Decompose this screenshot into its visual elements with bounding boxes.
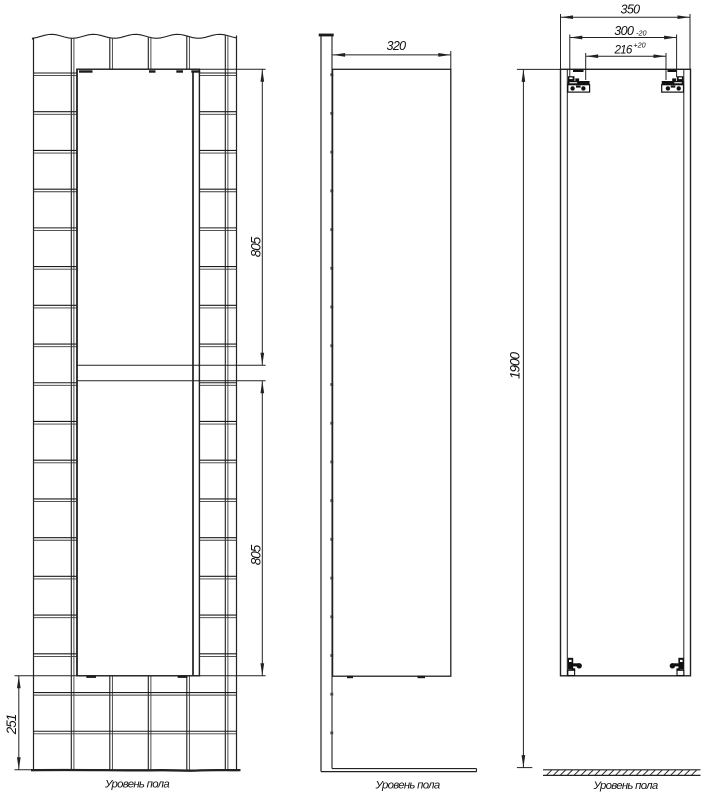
svg-text:216: 216 xyxy=(613,44,632,57)
svg-text:+20: +20 xyxy=(633,40,645,49)
svg-text:1900: 1900 xyxy=(507,351,522,379)
svg-text:805: 805 xyxy=(248,544,263,565)
svg-text:Уровень пола: Уровень пола xyxy=(375,779,440,791)
svg-text:320: 320 xyxy=(386,39,406,53)
svg-text:Уровень пола: Уровень пола xyxy=(593,780,658,792)
svg-text:251: 251 xyxy=(4,714,19,735)
svg-text:Уровень пола: Уровень пола xyxy=(104,778,169,790)
svg-text:805: 805 xyxy=(248,236,263,257)
svg-text:350: 350 xyxy=(620,3,640,17)
svg-text:300: 300 xyxy=(614,24,634,38)
svg-text:-20: -20 xyxy=(636,29,646,38)
